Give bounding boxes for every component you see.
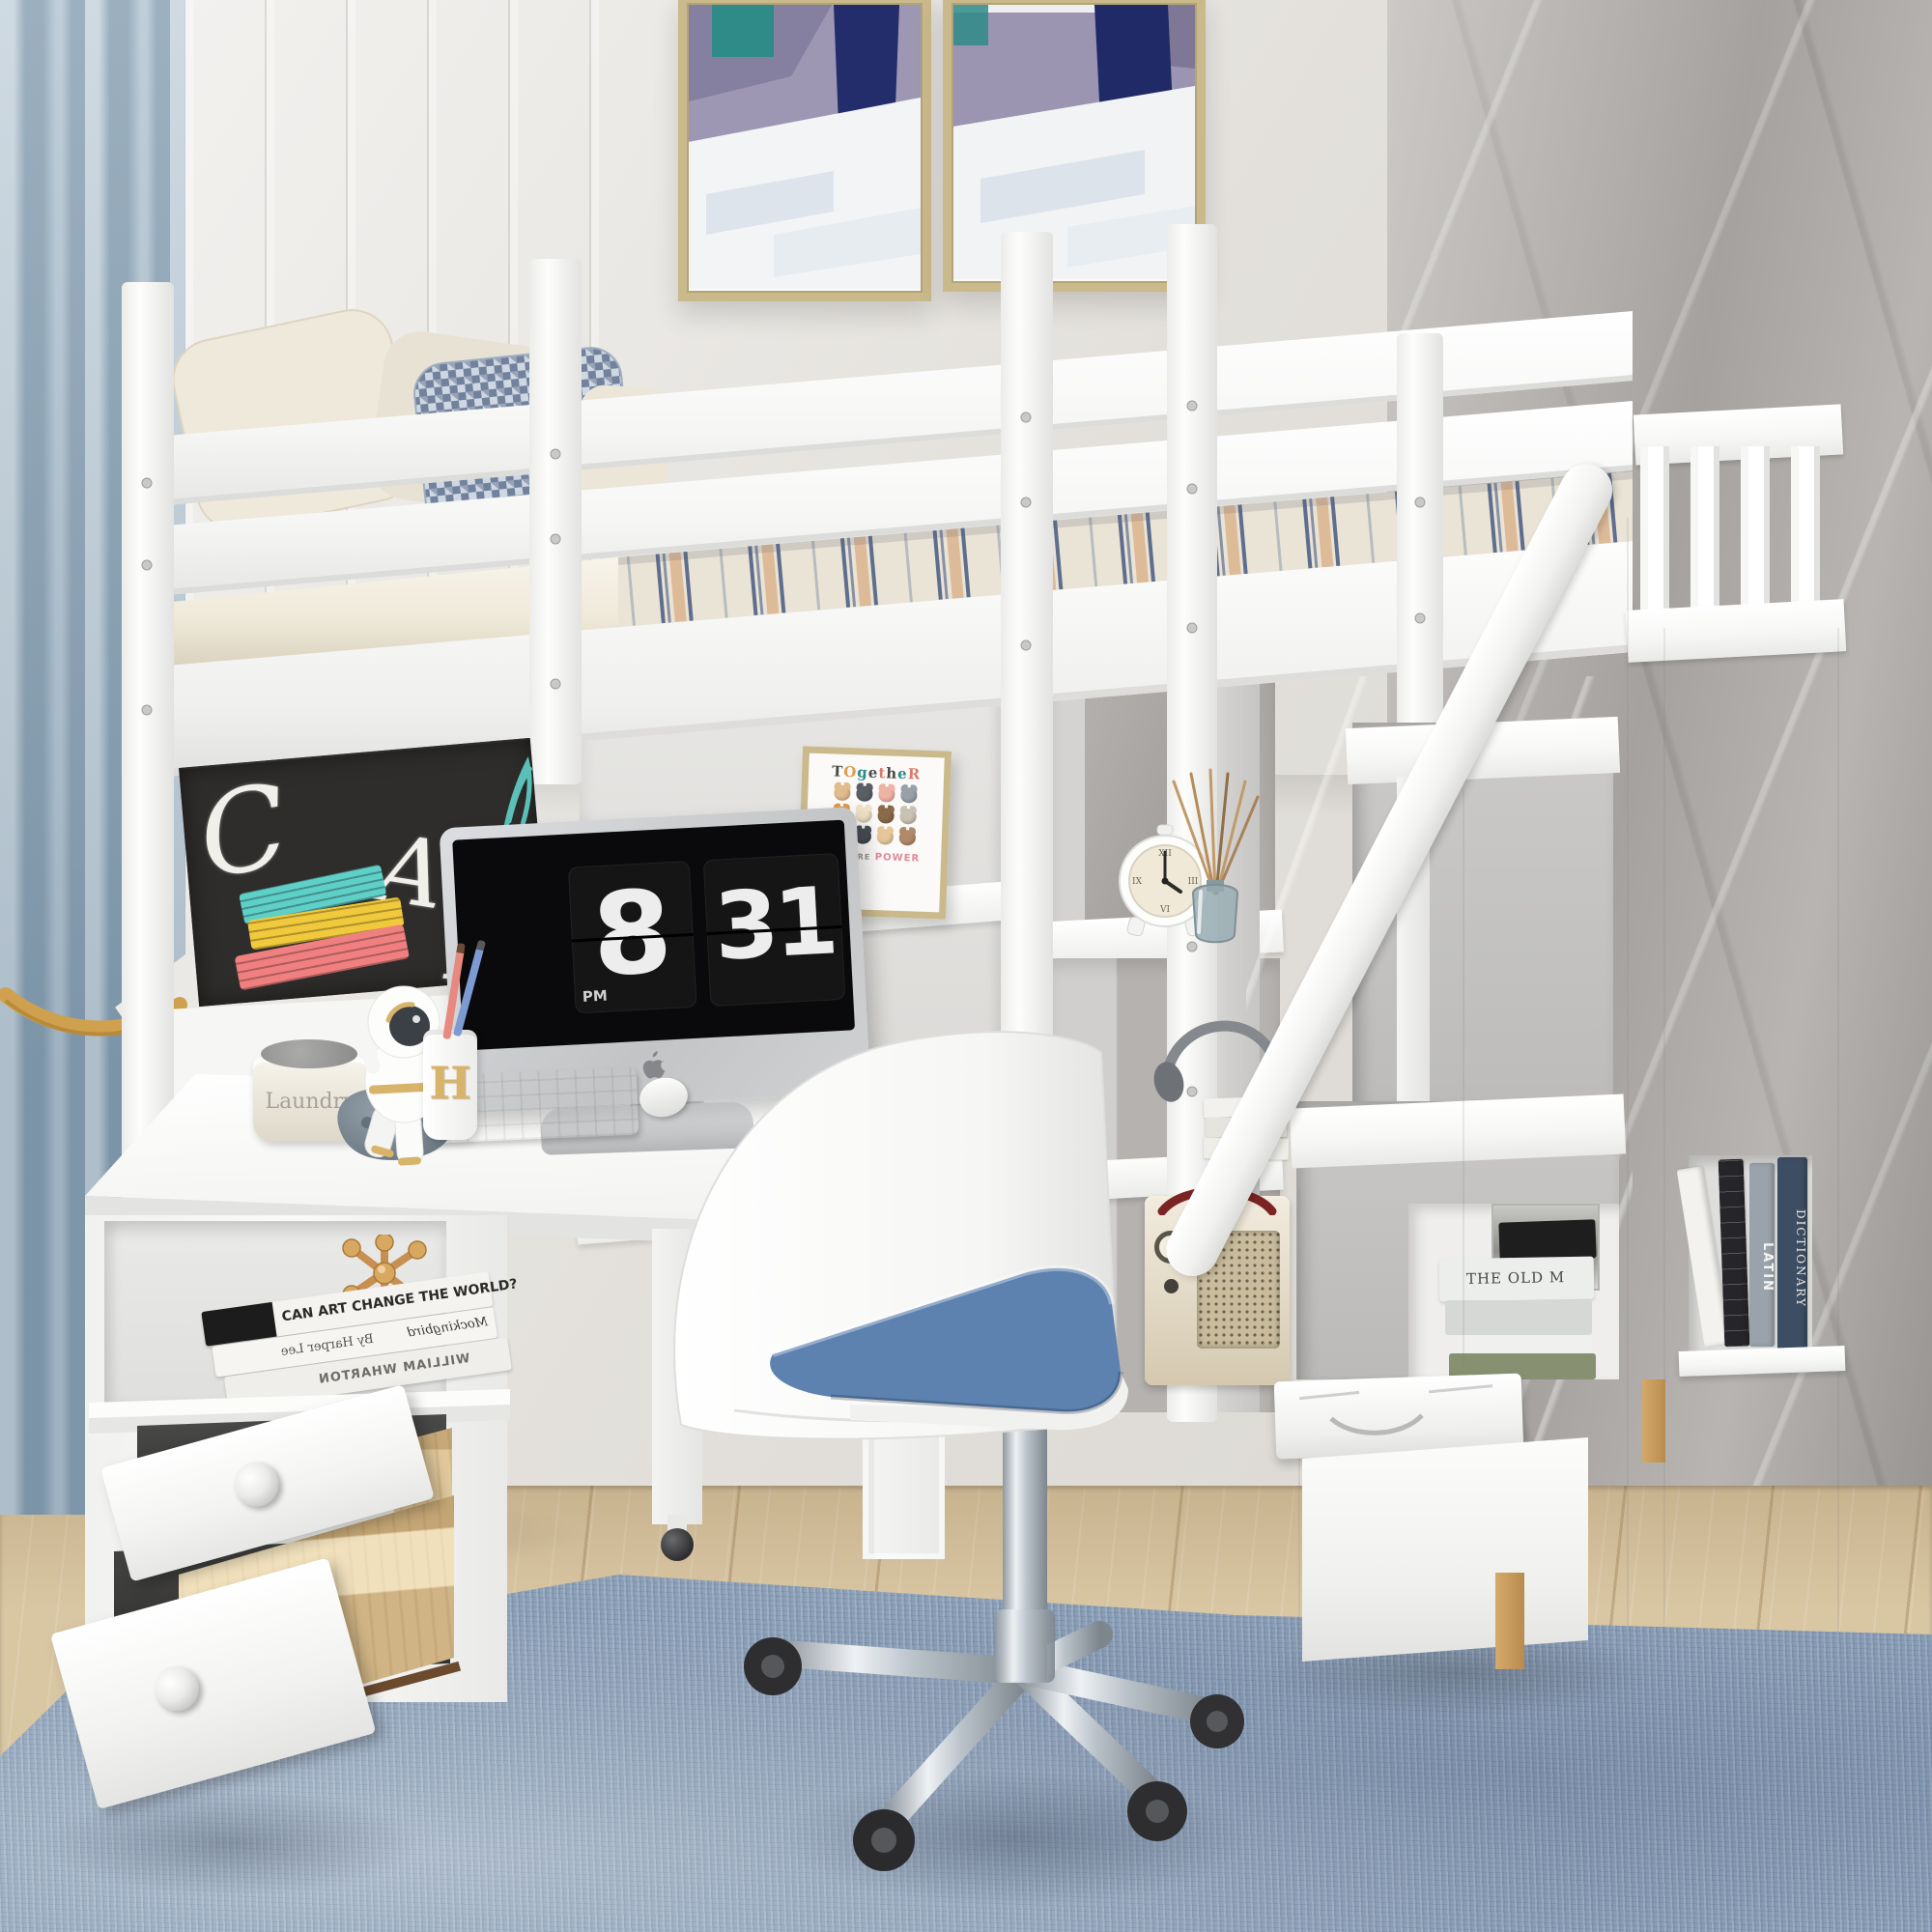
book-spine-dictionary: DICTIONARY (1777, 1157, 1807, 1350)
cat-face (900, 787, 918, 804)
drawer-knob-bottom (149, 1662, 204, 1717)
cat-face (877, 808, 895, 824)
bedroom-scene: C A × B TOgetheR WE ARE POWER (0, 0, 1932, 1932)
pen-holder: H (423, 1030, 477, 1140)
pen-holder-letter: H (423, 1057, 477, 1109)
cat-face (834, 785, 851, 802)
frame-letter: T (832, 762, 844, 780)
book-title-latin: LATIN (1760, 1242, 1775, 1293)
frame-letter: R (907, 765, 921, 782)
frame-subtitle-word: POWER (875, 852, 921, 865)
flip-clock-minute-card: 31 (703, 853, 846, 1007)
cat-face (899, 830, 917, 846)
book-title-mockingbird: Mockingbird (406, 1315, 488, 1341)
frame-letter: e (897, 765, 908, 782)
flip-clock-hour-card: 8 PM (568, 861, 697, 1013)
cat-face (878, 786, 895, 803)
cat-face (899, 809, 917, 825)
cat-face (877, 829, 895, 845)
frame-letter: O (843, 763, 858, 781)
wood-accent-stairs (1495, 1573, 1524, 1669)
book-title-dictionary: DICTIONARY (1794, 1209, 1807, 1308)
frame-title: TOgetheR (818, 762, 935, 783)
flip-clock-meridiem: PM (582, 987, 608, 1006)
chalk-letter-c: C (189, 758, 298, 904)
frame-letter: h (886, 764, 898, 781)
cat-face (856, 785, 873, 802)
book-title-harper-lee: By Harper Lee (280, 1332, 375, 1359)
slat-rail-slats (1640, 446, 1838, 616)
clock-numeral-9: IX (1132, 877, 1143, 887)
flip-clock-minute: 31 (704, 874, 844, 974)
diffuser-sticks (1174, 770, 1258, 894)
book-spine-latin: LATIN (1749, 1163, 1775, 1347)
stair-storage-drawer (1299, 1437, 1591, 1662)
book-spine-black (1719, 1159, 1750, 1348)
office-chair (618, 995, 1294, 1932)
drawer-knob-top (229, 1457, 284, 1512)
column-cubby: LATIN DICTIONARY (1689, 1155, 1812, 1352)
cat-face (855, 807, 872, 823)
wood-accent-column (1642, 1379, 1665, 1463)
bed-post-2 (529, 259, 582, 784)
frame-letter: g (857, 763, 868, 781)
